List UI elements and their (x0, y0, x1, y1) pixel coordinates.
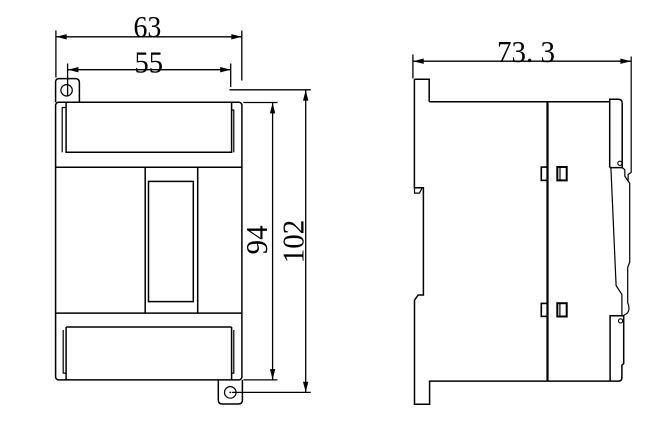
svg-text:94: 94 (239, 225, 274, 254)
svg-text:73. 3: 73. 3 (497, 34, 555, 69)
svg-text:63: 63 (134, 9, 162, 44)
svg-text:102: 102 (276, 220, 311, 264)
svg-text:55: 55 (134, 44, 163, 79)
